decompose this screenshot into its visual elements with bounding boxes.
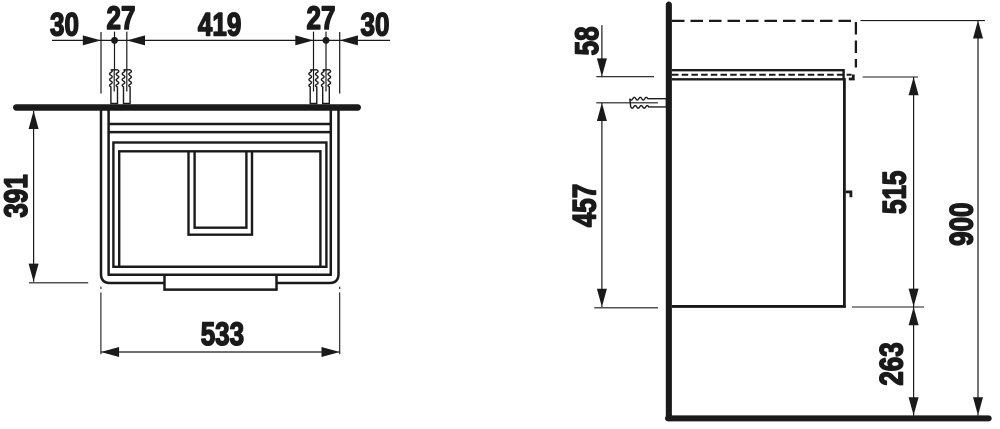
- svg-text:27: 27: [107, 0, 136, 36]
- svg-text:30: 30: [50, 7, 79, 43]
- svg-text:30: 30: [361, 7, 390, 43]
- svg-text:263: 263: [874, 342, 910, 385]
- svg-text:515: 515: [877, 171, 913, 214]
- svg-text:27: 27: [307, 0, 336, 36]
- svg-text:900: 900: [944, 203, 980, 246]
- svg-text:391: 391: [0, 174, 35, 217]
- svg-text:533: 533: [201, 316, 244, 352]
- svg-text:457: 457: [567, 184, 603, 227]
- svg-text:419: 419: [198, 7, 241, 43]
- svg-text:58: 58: [569, 26, 605, 55]
